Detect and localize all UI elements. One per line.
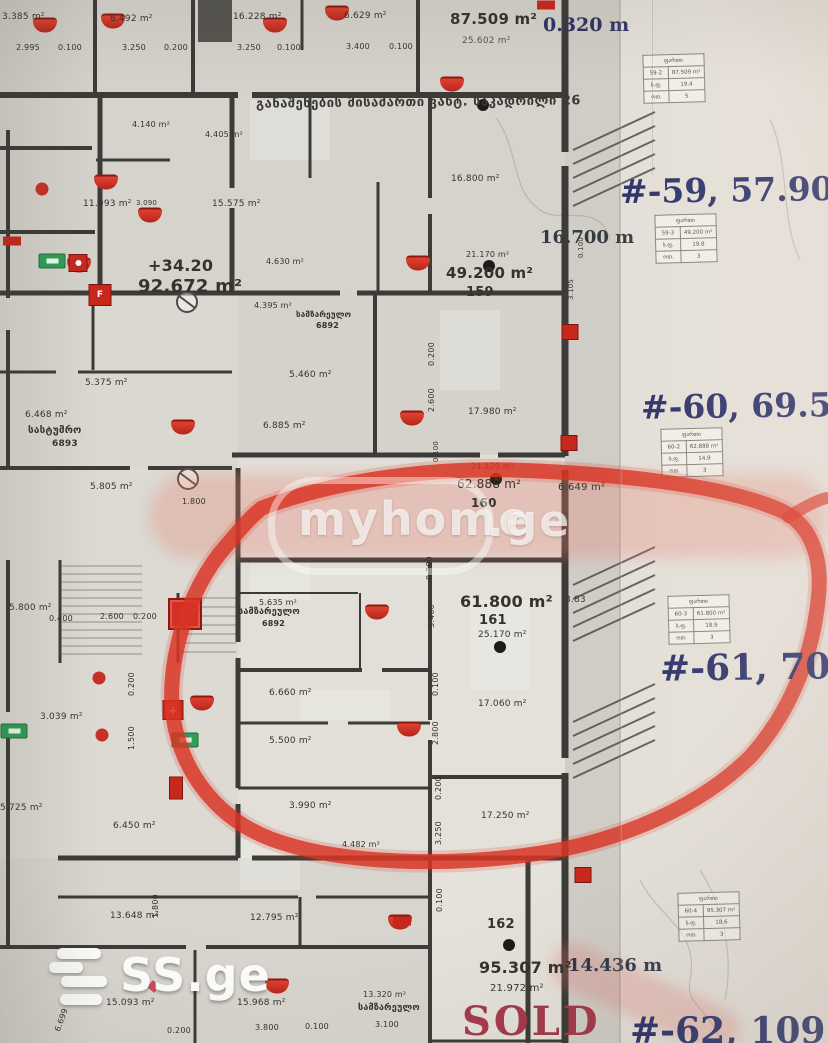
unit-61-annotation: #-61, 70.60k [660,644,828,690]
ssge-logo-bars-icon [61,976,107,987]
ssge-logo-bars-icon [57,948,101,959]
sold-stamp: SOLD [462,998,601,1043]
dimension-annotation-bottom: 14.436 m [568,955,662,976]
paper-fold [652,0,653,175]
ssge-logo-bars-icon [49,962,83,973]
unit-62-annotation: #-62, 109.7 [630,1010,828,1043]
dimension-annotation-top: 0.320 m [543,14,629,36]
watermark-tld: .ge [487,496,571,547]
ssge-logo-bars-icon [60,994,102,1005]
paper-fold [619,0,622,1043]
unit-60-annotation: #-60, 69.50kv [641,384,828,427]
floorplan-photo: F+ 3.385 m²2.9950.1008.492 m²3.2500.2001… [0,0,828,1043]
unit-59-annotation: #-59, 57.90kv.m [620,168,828,211]
ssge-logo-text: SS.ge [120,948,271,1002]
